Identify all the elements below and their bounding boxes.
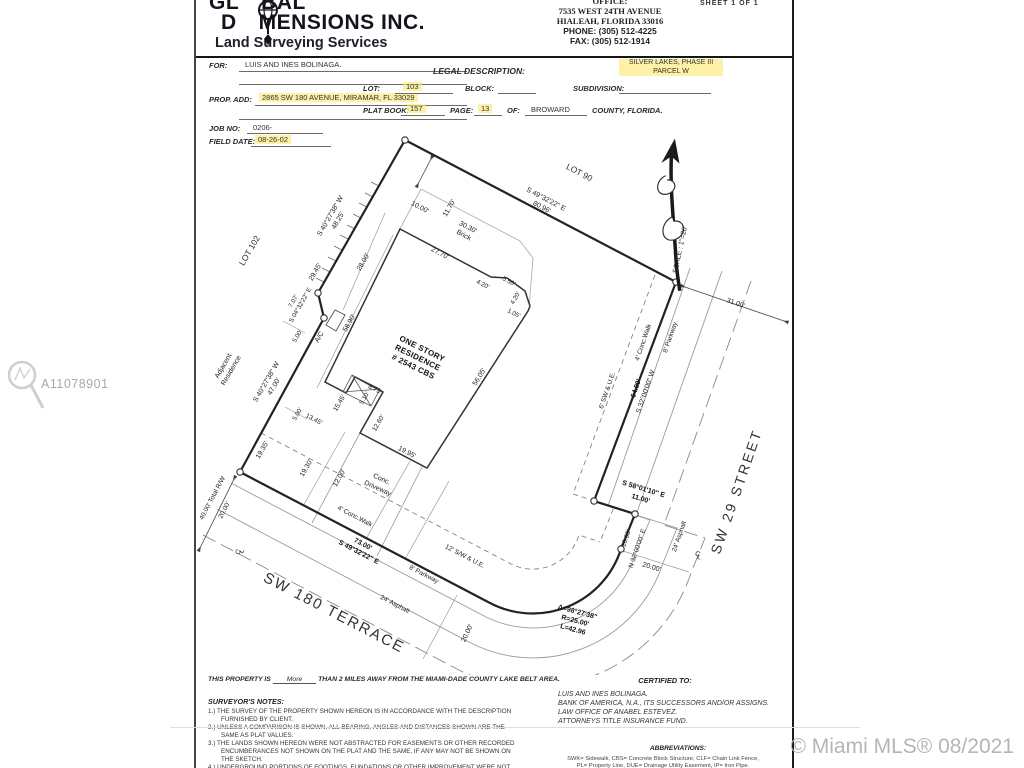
adjacent-residence-label: Adjacent Residence xyxy=(212,350,242,387)
jog-boundary-label: 7.07' S 04°32'22" E xyxy=(281,283,313,324)
asphalt-label-south: 24' Asphalt xyxy=(379,594,411,615)
of-label: OF: xyxy=(507,106,520,115)
form-rule xyxy=(619,93,711,94)
for-value: LUIS AND INES BOLINAGA. xyxy=(245,60,341,69)
subdivision-label: SUBDIVISION: xyxy=(573,84,624,93)
walk-label-east: 4' Conc.Walk xyxy=(634,323,653,362)
form-rule xyxy=(525,115,587,116)
prop-add-value: 2865 SW 180 AVENUE, MIRAMAR, FL 33029 xyxy=(259,93,418,102)
logo-tagline: Land Surveying Services xyxy=(215,35,425,51)
curve-data-label: Δ=98°27'38" R=25.00' L=42.96 xyxy=(552,603,598,639)
form-rule xyxy=(474,115,502,116)
prop-add-label: PROP. ADD: xyxy=(209,95,252,104)
easement-6-label: 6' SW & U.E. xyxy=(598,371,617,410)
centerline-symbol: C L xyxy=(234,547,246,558)
form-rule xyxy=(498,93,536,94)
plat-book-label: PLAT BOOK: xyxy=(363,106,409,115)
lake-belt-note: THIS PROPERTY IS More THAN 2 MILES AWAY … xyxy=(208,676,538,683)
office-address1: 7535 WEST 24TH AVENUE xyxy=(515,6,705,16)
dim-10-00: 10.00' xyxy=(410,200,430,215)
street-name-sw180: SW 180 TERRACE xyxy=(261,569,408,657)
certified-party: BANK OF AMERICA, N.A., ITS SUCCESSORS AN… xyxy=(558,699,788,708)
sheet-number: SHEET 1 OF 1 xyxy=(700,0,759,7)
parkway-label-east: 8' Parkway xyxy=(662,321,679,354)
plat-book-value: 157 xyxy=(407,104,426,113)
dim-5-00: 5.00' xyxy=(291,329,304,344)
form-rule xyxy=(255,105,467,106)
form-rule xyxy=(401,115,445,116)
lot-102-label: LOT 102 xyxy=(237,234,262,268)
certified-party: ATTORNEYS TITLE INSURANCE FUND. xyxy=(558,717,788,726)
dim-10-00-e: 10.00' xyxy=(620,529,632,548)
s-boundary-label: 73.00' S 49°32'22" E xyxy=(337,531,384,566)
certified-party: LAW OFFICE OF ANABEL ESTEVEZ. xyxy=(558,708,788,717)
office-address2: HIALEAH, FLORIDA 33016 xyxy=(515,16,705,26)
county-value: BROWARD xyxy=(531,105,570,114)
surveyor-note-4: 4.) UNDERGROUND PORTIONS OF FOOTINGS, FU… xyxy=(208,764,520,768)
phone-label: PHONE: xyxy=(563,26,596,36)
nw-boundary-label: S 40°27'38" W 48.25' xyxy=(316,194,353,242)
dim-5-00: 5.00' xyxy=(291,407,304,422)
subdivision-value: SILVER LAKES, PHASE III PARCEL W xyxy=(619,59,723,76)
plat-drawing: LOT 90 S 49°32'22" E 80.96' LOT 102 Adja… xyxy=(195,125,795,675)
street-name-sw29: SW 29 STREET xyxy=(707,427,765,556)
svg-text:11.00': 11.00' xyxy=(631,493,651,505)
lot-label: LOT: xyxy=(363,84,380,93)
company-logo: GLBAL DMENSIONS INC. Land Surveying Serv… xyxy=(209,0,425,51)
mls-copyright-watermark: © Miami MLS® 08/2021 xyxy=(790,735,1014,759)
county-label: COUNTY, FLORIDA. xyxy=(592,106,663,115)
lot-90-label: LOT 90 xyxy=(565,161,595,183)
certified-to-title: CERTIFIED TO: xyxy=(590,676,740,685)
scan-artifact-line xyxy=(170,727,860,728)
survey-document-page: GLBAL DMENSIONS INC. Land Surveying Serv… xyxy=(0,0,1024,768)
globe-plumb-icon xyxy=(255,0,281,46)
certified-party: LUIS AND INES BOLINAGA. xyxy=(558,690,788,699)
abbreviations-title: ABBREVIATIONS: xyxy=(613,745,743,752)
abbreviations-list: SWK= Sidewalk, CBS= Concrete Block Struc… xyxy=(538,756,788,768)
dim-31-00: 31.00' xyxy=(725,297,745,310)
legal-description-label: LEGAL DESCRIPTION: xyxy=(433,66,525,76)
surveyor-note-3: 3.) THE LANDS SHOWN HEREON WERE NOT ABST… xyxy=(208,740,520,763)
certified-to-list: LUIS AND INES BOLINAGA. BANK OF AMERICA,… xyxy=(558,690,788,726)
header-divider xyxy=(195,56,793,58)
surveyor-note-1: 1.) THE SURVEY OF THE PROPERTY SHOWN HER… xyxy=(208,708,520,723)
centerline-symbol: C L xyxy=(693,550,703,561)
brick-label: 30.30' Brick xyxy=(454,220,478,243)
page-value: 13 xyxy=(478,104,492,113)
dim-28-00: 28.00' xyxy=(356,252,371,272)
surveyors-notes-list: 1.) THE SURVEY OF THE PROPERTY SHOWN HER… xyxy=(208,708,520,768)
office-address-block: OFFICE: 7535 WEST 24TH AVENUE HIALEAH, F… xyxy=(515,0,705,46)
w-boundary-label: S 40°27'38" W 47.00' xyxy=(252,360,289,408)
dim-15-45: 15.45' xyxy=(332,394,347,413)
sheet-right-edge xyxy=(792,0,794,768)
mls-listing-id-watermark: A11078901 xyxy=(41,377,109,391)
form-rule xyxy=(239,119,467,120)
jog2-boundary-label: S 58°01'10" E 11.00' xyxy=(618,479,666,509)
surveyors-notes-title: SURVEYOR'S NOTES: xyxy=(208,697,284,706)
block-label: BLOCK: xyxy=(465,84,494,93)
dim-13-45: 13.45' xyxy=(304,412,323,426)
dim-20-00: 20.00' xyxy=(460,623,474,643)
dim-29-45: 29.45' xyxy=(308,262,323,282)
logo-text: MENSIONS INC. xyxy=(259,11,425,34)
page-label: PAGE: xyxy=(450,106,473,115)
lot-value: 103 xyxy=(403,82,422,91)
survey-sheet: GLBAL DMENSIONS INC. Land Surveying Serv… xyxy=(195,0,793,768)
phone-value: (305) 512-4225 xyxy=(599,26,657,36)
dim-19-30: 19.30' xyxy=(299,458,314,478)
for-label: FOR: xyxy=(209,61,227,70)
svg-text:L: L xyxy=(696,554,702,562)
form-rule xyxy=(239,84,467,85)
logo-text: D xyxy=(221,11,237,34)
form-rule xyxy=(395,93,453,94)
lake-belt-more-value: More xyxy=(273,676,317,684)
fax-value: (305) 512-1914 xyxy=(592,36,650,46)
dim-20-00: 20.00' xyxy=(641,561,661,573)
fax-label: FAX: xyxy=(570,36,589,46)
sheet-left-edge xyxy=(194,0,196,768)
dim-19-35: 19.35' xyxy=(255,440,270,460)
